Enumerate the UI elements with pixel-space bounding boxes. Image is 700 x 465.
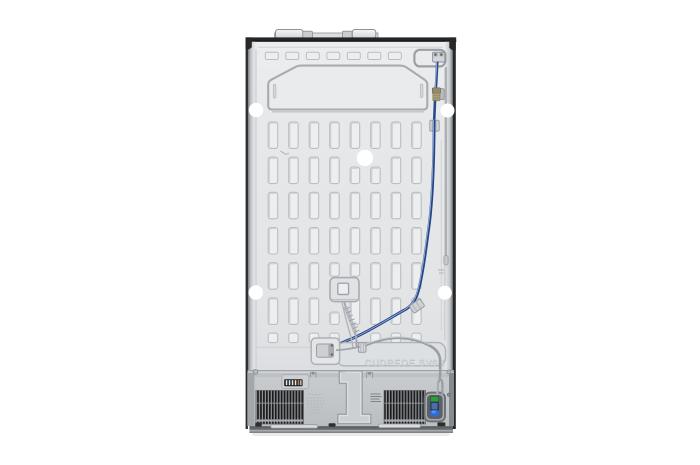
- svg-text:CUDREOE SV6S: CUDREOE SV6S: [365, 358, 445, 369]
